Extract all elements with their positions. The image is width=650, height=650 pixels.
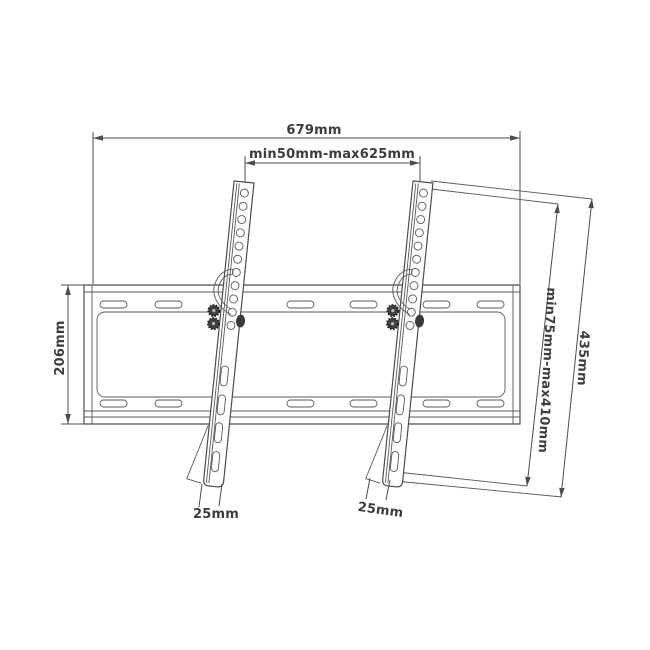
vesa-height-label: min75mm-max410mm [535, 287, 559, 454]
extension-line [199, 484, 202, 507]
arrowhead [65, 414, 71, 424]
dimension-left-arm-width: 25mm [193, 484, 239, 522]
plate-height-label: 206mm [53, 320, 68, 375]
arrowhead [588, 199, 594, 208]
mount-span-label: min50mm-max625mm [249, 147, 415, 162]
wall-mount-dimension-drawing: 679mm min50mm-max625mm 206mm min75mm-max… [0, 0, 650, 650]
extension-line [366, 478, 370, 499]
dimension-mount-span: min50mm-max625mm [245, 147, 420, 184]
dimension-vesa-height: min75mm-max410mm [525, 204, 560, 486]
total-width-label: 679mm [286, 123, 341, 138]
arrowhead [510, 135, 520, 141]
arrowhead [559, 488, 565, 497]
wall-plate [84, 285, 520, 424]
arrowhead [65, 285, 71, 295]
tilt-bottom-edge [395, 481, 562, 497]
arrowhead [554, 204, 560, 213]
tilt-top-edge-inner [431, 189, 558, 204]
arrowhead [525, 477, 531, 486]
arrowhead [93, 135, 103, 141]
right-arm-width-label: 25mm [357, 500, 405, 521]
arm-length-label: 435mm [574, 330, 592, 386]
dimension-arm-length: 435mm [559, 199, 594, 497]
tilt-top-edge [431, 181, 592, 199]
left-arm-width-label: 25mm [193, 507, 239, 522]
dimension-plate-height: 206mm [53, 285, 84, 424]
tilt-bottom-edge-inner [397, 472, 527, 486]
wall-plate-outline [84, 285, 520, 424]
technical-drawing: 679mm min50mm-max625mm 206mm min75mm-max… [0, 0, 650, 650]
